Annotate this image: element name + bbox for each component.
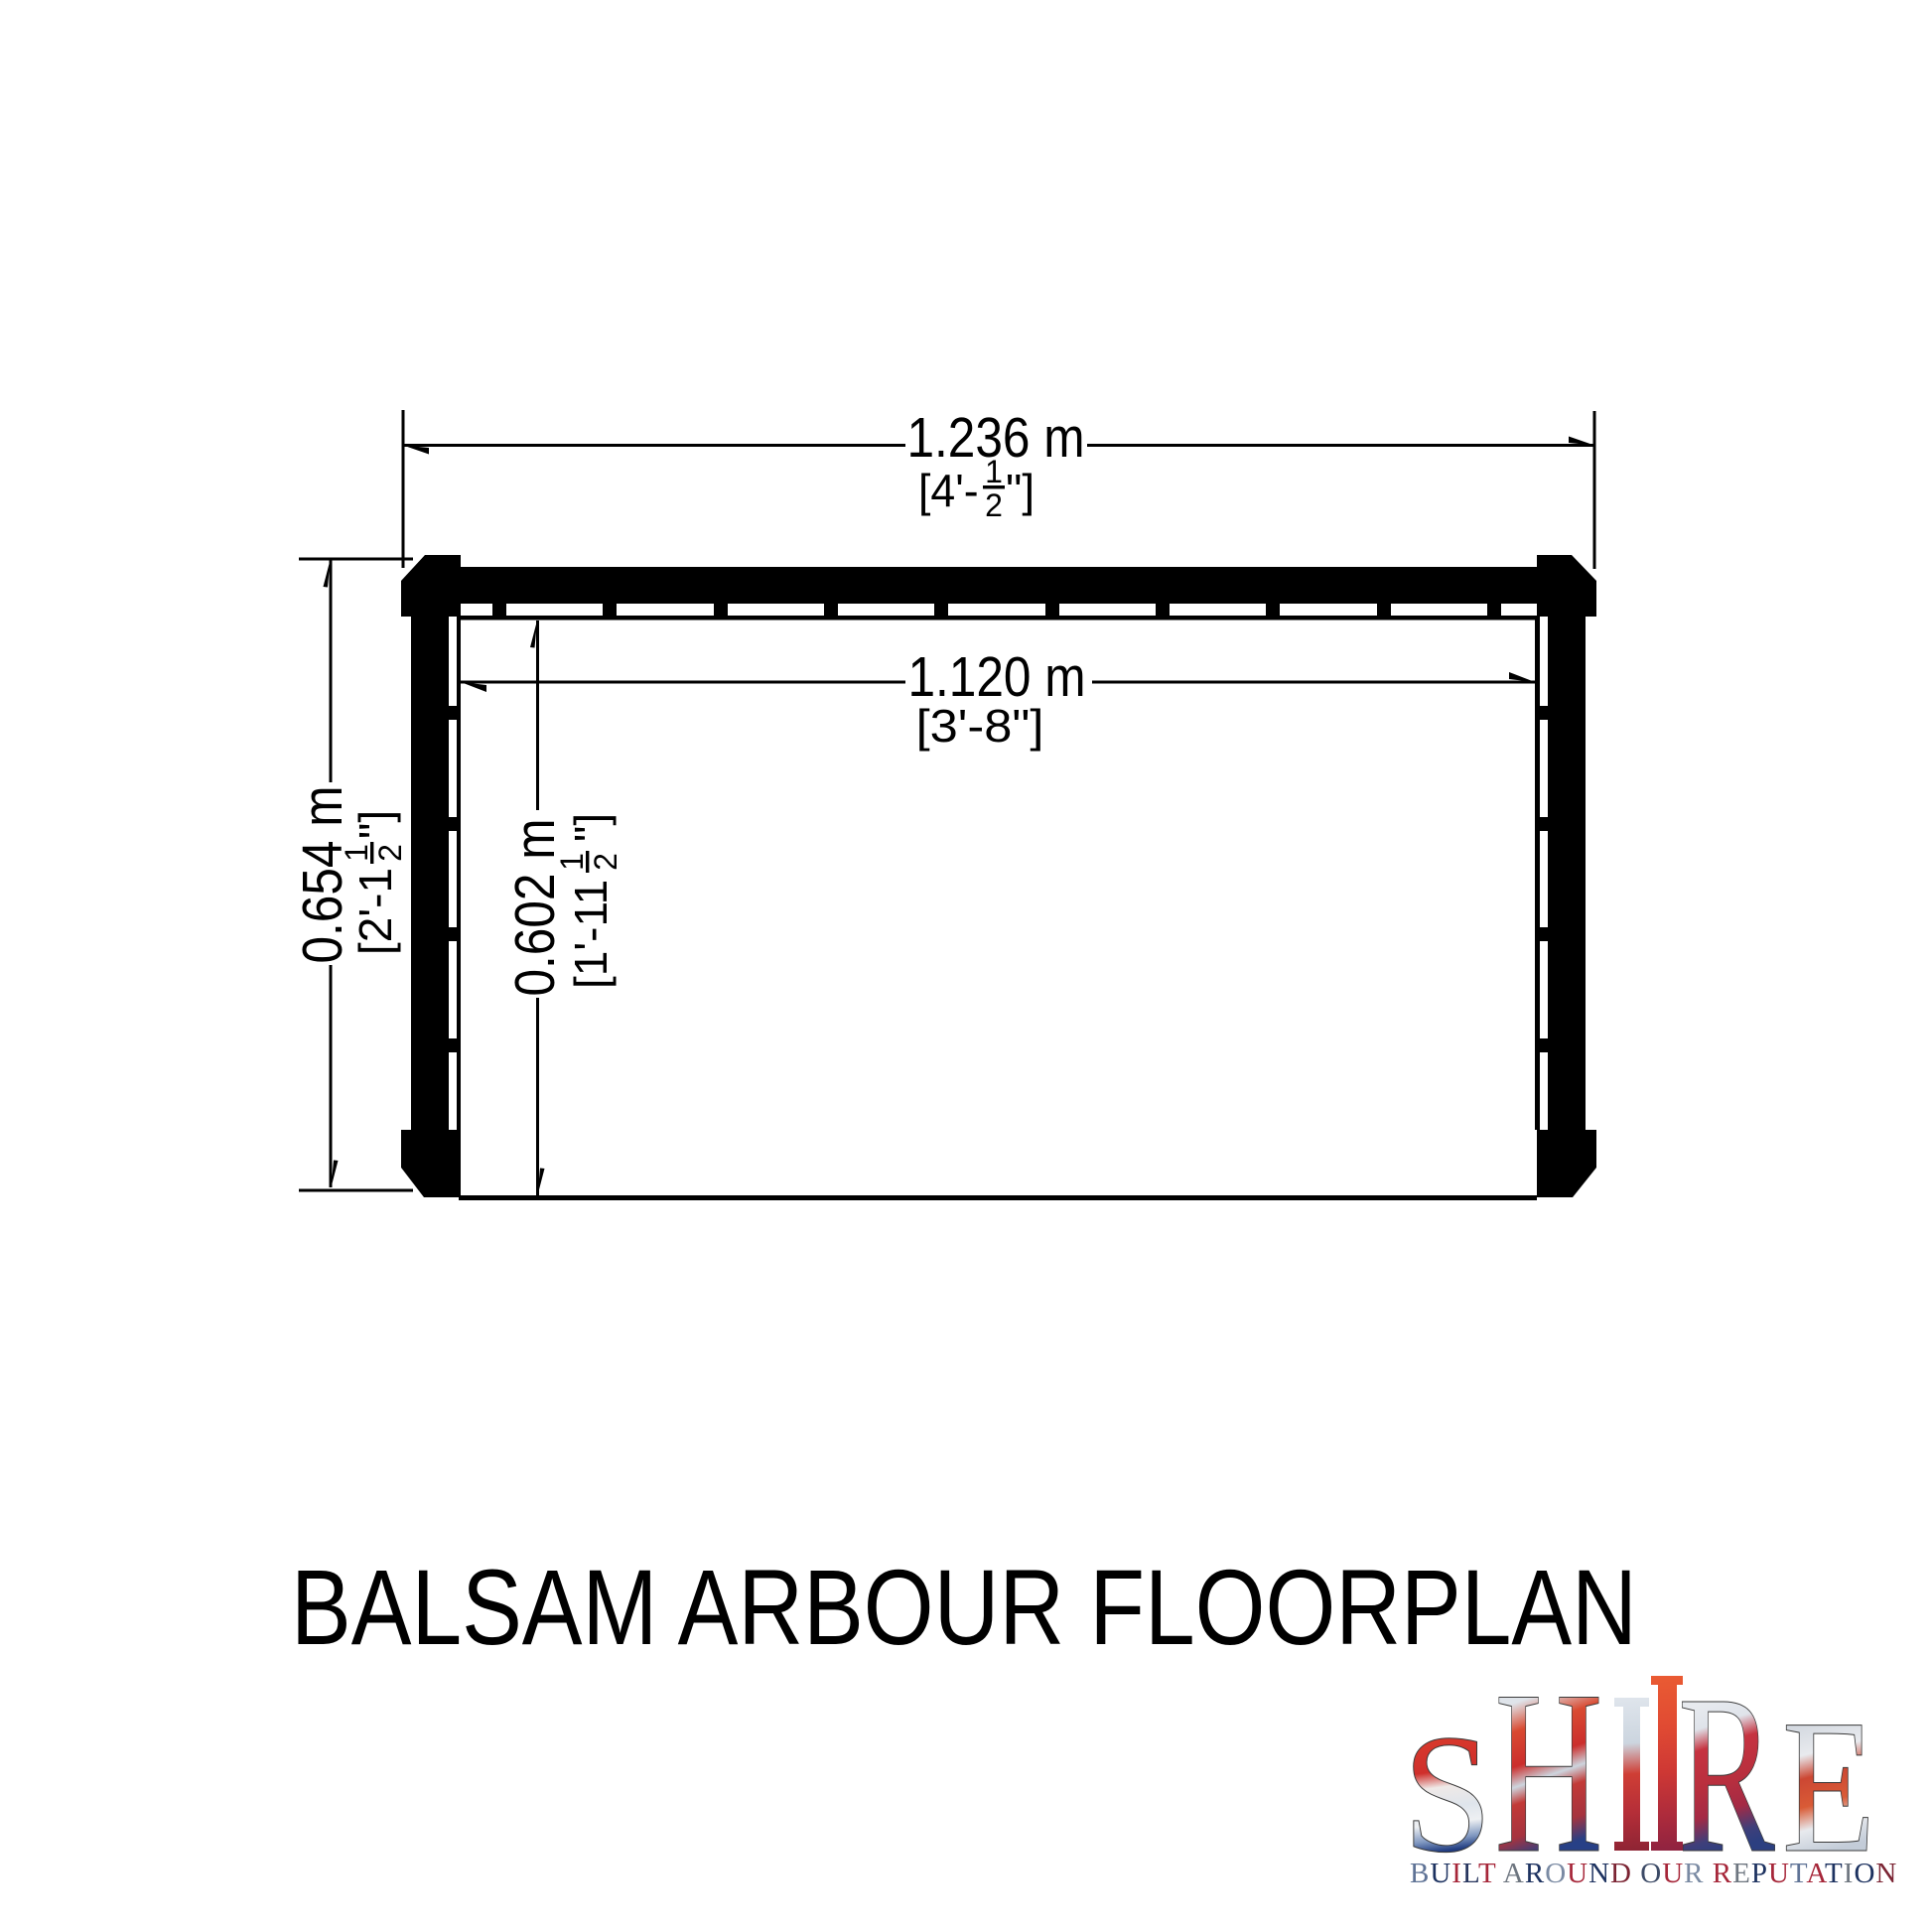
svg-text:[1'-11: [1'-11 xyxy=(565,880,617,989)
svg-text:"]: "] xyxy=(1006,465,1035,516)
svg-text:1: 1 xyxy=(985,454,1003,489)
svg-text:BALSAM ARBOUR FLOORPLAN: BALSAM ARBOUR FLOORPLAN xyxy=(291,1549,1637,1668)
svg-text:BUILT AROUND OUR REPUTATION: BUILT AROUND OUR REPUTATION xyxy=(1410,1858,1897,1889)
svg-text:0.654 m: 0.654 m xyxy=(292,785,354,963)
svg-text:2: 2 xyxy=(372,844,408,862)
svg-text:"]: "] xyxy=(565,813,617,842)
svg-text:[2'-1: [2'-1 xyxy=(349,868,401,955)
svg-text:1.120 m: 1.120 m xyxy=(907,646,1085,709)
svg-text:1: 1 xyxy=(339,844,374,862)
svg-text:2: 2 xyxy=(985,487,1003,523)
svg-text:[3'-8"]: [3'-8"] xyxy=(916,701,1044,752)
svg-text:1: 1 xyxy=(554,853,590,871)
svg-text:0.602 m: 0.602 m xyxy=(504,818,567,996)
svg-text:"]: "] xyxy=(349,810,401,839)
svg-text:[4'-: [4'- xyxy=(918,465,979,516)
svg-text:2: 2 xyxy=(588,853,623,871)
